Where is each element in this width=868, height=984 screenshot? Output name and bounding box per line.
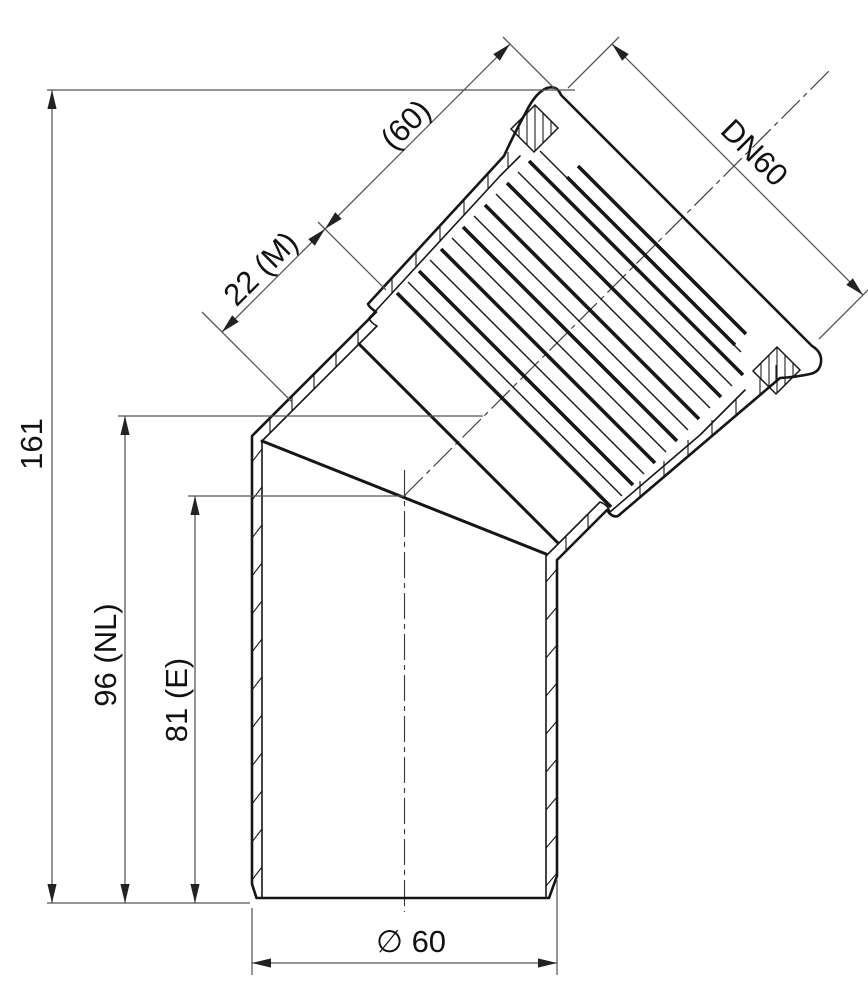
ext-line-m-upper [318,222,386,290]
part-outline [252,87,821,898]
hatch-upper-arm-wall [270,152,508,433]
dim-label-length-e: 81 (E) [159,658,194,742]
hatch-right-wall [546,569,557,886]
hatch-left-wall [252,449,262,880]
dimension-lines [52,44,863,963]
inner-wall-right [546,390,745,898]
outer-profile [252,87,821,898]
dim-label-overall-height: 161 [14,418,49,470]
ext-line-m-lower [202,312,292,402]
dim-label-socket-ref: (60) [374,93,438,157]
socket-stop-edge [359,344,558,543]
seal-rib-lines [397,161,746,507]
wall-hatching [252,152,776,886]
technical-drawing: 161 96 (NL) 81 (E) 22 (M) (60) DN60 ∅ 60 [0,0,868,984]
dim-label-outer-diameter: ∅ 60 [376,924,446,959]
ext-line-dn-left [568,37,619,88]
dim-label-nominal-diameter: DN60 [714,112,795,193]
dim-label-depth-m: 22 (M) [217,225,305,313]
dim-label-length-nl: 96 (NL) [88,603,123,706]
gasket-upper-hatch [519,106,551,151]
gasket-lower-hatch [761,347,793,393]
ext-line-socket-face [503,37,556,90]
socket-axis-centerline [405,71,830,496]
miter-seam-line [262,441,546,554]
seal-ribs [397,151,746,507]
ext-line-dn-right [819,288,868,339]
